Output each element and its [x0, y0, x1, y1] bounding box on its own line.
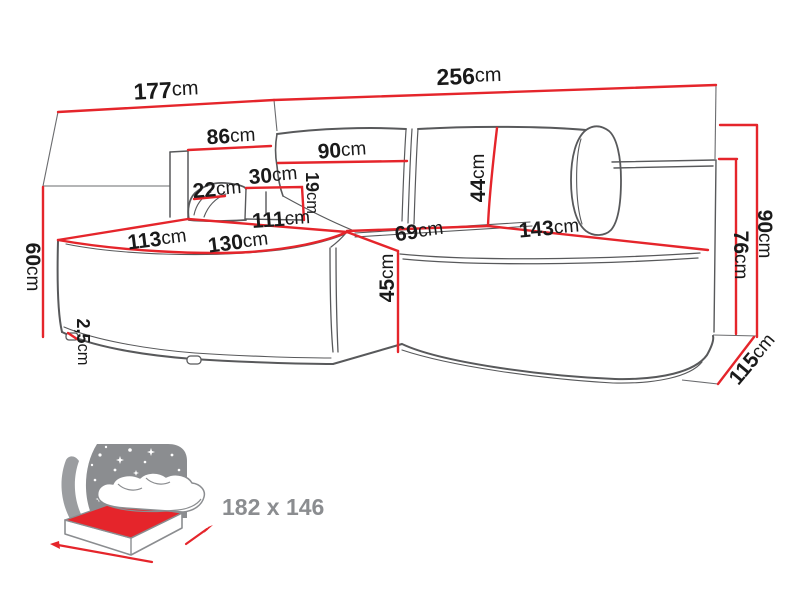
dim-line-44: [488, 128, 497, 226]
dim-label-69: 69cm: [393, 216, 444, 246]
dim-label-45: 45cm: [376, 254, 399, 303]
moon-crescent-icon: [61, 456, 84, 522]
sofa-dimension-diagram: 177cm 256cm 86cm 90cm 30cm 19cm 22cm 60c…: [0, 0, 800, 600]
dim-label-90-right: 90cm: [754, 210, 777, 259]
dimension-labels: 177cm 256cm 86cm 90cm 30cm 19cm 22cm 60c…: [22, 62, 780, 389]
dim-label-76: 76cm: [730, 231, 753, 280]
right-roll-cushion: [571, 126, 621, 235]
section-seam: [330, 233, 346, 352]
dim-label-130: 130cm: [207, 227, 270, 257]
dim-label-2-5: 2,5cm: [73, 318, 93, 365]
dim-line-90-top: [278, 161, 407, 163]
right-seat-front-edge: [400, 253, 700, 264]
dim-label-86: 86cm: [206, 123, 256, 149]
sleeping-function-icon: [50, 444, 213, 562]
dim-label-143: 143cm: [518, 214, 580, 242]
dim-label-90-top: 90cm: [317, 137, 367, 163]
right-skirt: [333, 336, 713, 383]
dim-label-22: 22cm: [192, 175, 243, 202]
dim-label-256: 256cm: [436, 62, 502, 90]
chaise-skirt: [58, 241, 333, 364]
foot-icon: [187, 356, 201, 364]
sleeping-area-label: 182 x 146: [222, 494, 324, 520]
dim-label-60: 60cm: [22, 243, 45, 292]
dim-label-44: 44cm: [467, 154, 490, 203]
chaise-back-panel: [170, 151, 188, 219]
dim-label-30: 30cm: [248, 161, 299, 188]
dim-label-177: 177cm: [133, 75, 199, 104]
dim-line-256: [274, 85, 716, 100]
